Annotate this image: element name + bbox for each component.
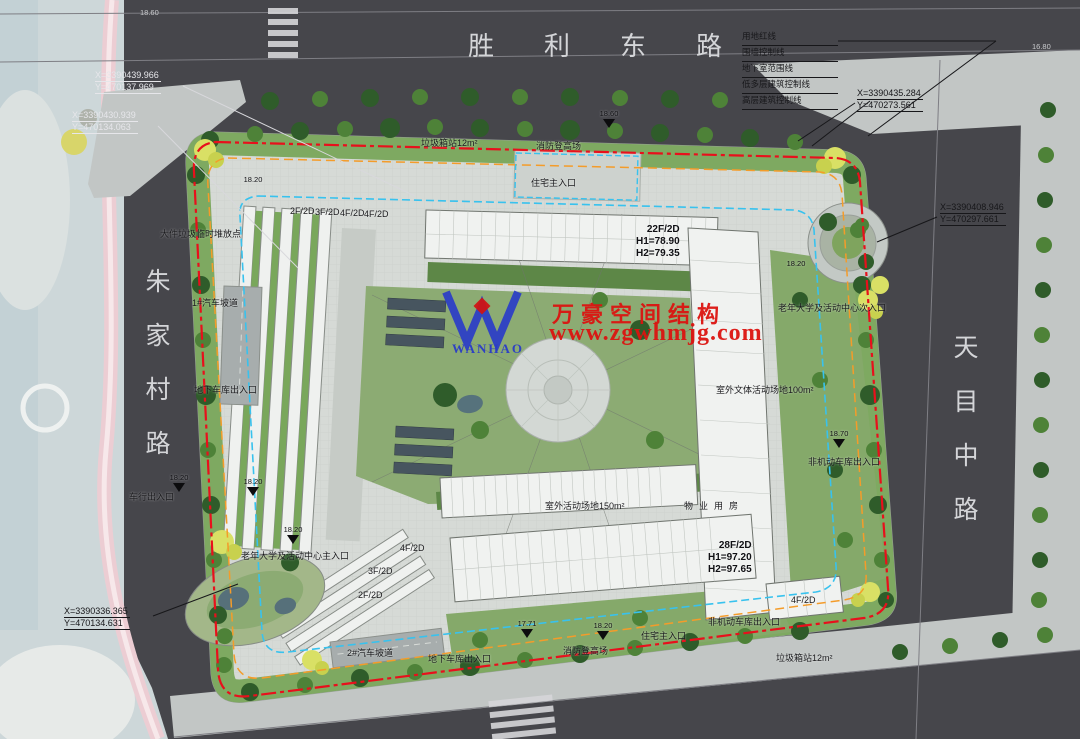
map-label: 物业用房	[684, 501, 744, 511]
coordinate-callout-top-left-outer: X=3390439.966 Y=470137.969	[95, 70, 161, 94]
map-label: 2F/2D	[358, 590, 383, 600]
entrance-triangle-icon	[173, 483, 185, 492]
legend-item-highrise-line: 高层建筑控制线	[742, 94, 838, 110]
elevation-marker: 18.20	[238, 176, 268, 184]
garden-circle-northeast	[808, 203, 888, 283]
map-label: 4F/2D	[400, 543, 425, 553]
watermark-logo-text: WANHAO	[440, 341, 536, 357]
legend-item-basement-line: 地下室范围线	[742, 62, 838, 78]
entrance-triangle-icon	[597, 631, 609, 640]
map-label: 地下车库出入口	[428, 654, 491, 664]
station-number: 16.80	[1032, 42, 1051, 51]
map-label: 消防登高场	[563, 646, 608, 656]
legend-item-fence-line: 围墙控制线	[742, 46, 838, 62]
road-name-right: 天目中路	[946, 334, 982, 550]
elevation-marker: 18.20	[781, 260, 811, 268]
elevation-marker: 18.60	[594, 110, 624, 128]
map-label: 3F/2D	[315, 207, 340, 217]
map-label: 住宅主入口	[641, 631, 686, 641]
coordinate-callout-top-left-inner: X=3390430.939 Y=470134.063	[72, 110, 138, 134]
map-label: 室外活动场地150m²	[545, 501, 625, 511]
map-label: 1#汽车坡道	[192, 298, 238, 308]
map-label: 4F/2D	[364, 209, 389, 219]
site-plan-canvas: 胜利东路 朱家村路 天目中路 用地红线 围墙控制线 地下室范围线 低多层建筑控制…	[0, 0, 1080, 739]
legend: 用地红线 围墙控制线 地下室范围线 低多层建筑控制线 高层建筑控制线	[742, 30, 838, 110]
entrance-triangle-icon	[603, 119, 615, 128]
map-label: 消防登高场	[536, 141, 581, 151]
legend-item-red-line: 用地红线	[742, 30, 838, 46]
elevation-marker: 18.20	[588, 622, 618, 640]
map-label: 非机动车库出入口	[808, 457, 880, 467]
map-label: 大件垃圾临时堆放点	[160, 229, 241, 239]
entrance-triangle-icon	[287, 535, 299, 544]
elevation-marker: 18.20	[278, 526, 308, 544]
map-label: 2F/2D	[290, 206, 315, 216]
road-name-left: 朱家村路	[138, 268, 174, 484]
coordinate-callout-right: X=3390408.946 Y=470297.661	[940, 202, 1006, 226]
building-label-north-tower: 22F/2D H1=78.90 H2=79.35	[636, 224, 680, 260]
entrance-triangle-icon	[247, 487, 259, 496]
elevation-marker: 18.20	[238, 478, 268, 496]
road-name-top: 胜利东路	[468, 26, 772, 63]
coordinate-callout-top-right: X=3390435.284 Y=470273.561	[857, 88, 923, 112]
entrance-triangle-icon	[833, 439, 845, 448]
building-label-south-tower: 28F/2D H1=97.20 H2=97.65	[708, 540, 752, 576]
map-label: 4F/2D	[340, 208, 365, 218]
station-number: 18.60	[140, 8, 159, 17]
map-label: 地下车库出入口	[194, 385, 257, 395]
map-label: 非机动车库出入口	[708, 617, 780, 627]
elevation-marker: 18.20	[164, 474, 194, 492]
map-label: 2#汽车坡道	[347, 648, 393, 658]
entrance-triangle-icon	[521, 629, 533, 638]
watermark-website: www.zgwhmjg.com	[549, 320, 763, 347]
map-label: 室外文体活动场地100m²	[716, 385, 814, 395]
elevation-marker: 17.71	[512, 620, 542, 638]
legend-item-lowrise-line: 低多层建筑控制线	[742, 78, 838, 94]
map-label: 老年大学及活动中心主入口	[241, 551, 349, 561]
map-label: 垃圾箱站12m²	[421, 138, 478, 148]
map-label: 老年大学及活动中心次入口	[778, 303, 886, 313]
map-label: 3F/2D	[368, 566, 393, 576]
map-label: 垃圾箱站12m²	[776, 653, 833, 663]
map-label: 4F/2D	[791, 595, 816, 605]
map-label: 住宅主入口	[531, 178, 576, 188]
map-label: 车行出入口	[129, 492, 174, 502]
elevation-marker: 18.70	[824, 430, 854, 448]
coordinate-callout-bottom-left: X=3390336.365 Y=470134.631	[64, 606, 130, 630]
